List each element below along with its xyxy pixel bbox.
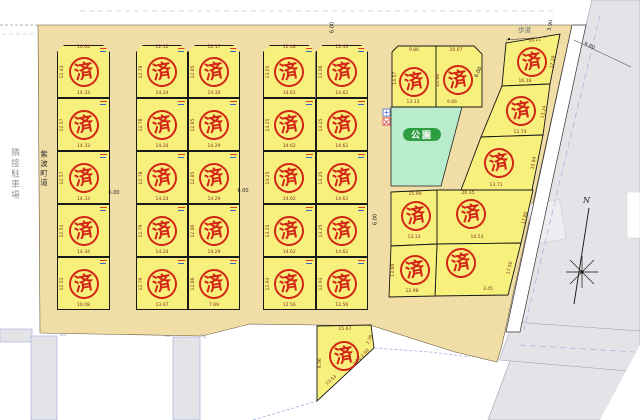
dimension-label: 17.80 xyxy=(522,211,529,225)
sold-stamp: 済 xyxy=(327,339,362,374)
sold-stamp: 済 xyxy=(399,199,434,234)
dimension-label: 15.67 xyxy=(339,328,352,333)
dimension-label: 13.24 xyxy=(542,106,549,119)
dimension-label: 18.21 xyxy=(528,38,541,44)
dimension-label: 17.28 xyxy=(551,56,558,69)
site-plan: 済14.3312.43済14.3312.57済14.3312.57済14.341… xyxy=(0,0,640,420)
sold-stamp: 済 xyxy=(482,146,517,181)
park-label: 公園 xyxy=(403,128,441,141)
dimension-label: 9.66 xyxy=(447,101,457,106)
town-road-label: 紫波町道 xyxy=(40,150,48,188)
north-label: N xyxy=(583,196,590,205)
dimension-label: 12.74 xyxy=(514,131,527,136)
sold-stamp: 済 xyxy=(397,65,432,100)
dimension-label: 17.50 xyxy=(507,261,514,275)
sold-stamp: 済 xyxy=(441,63,476,98)
dimension-label: 3.45 xyxy=(483,288,493,293)
dimension-label: 13.13 xyxy=(407,101,420,106)
dimension-label: 13.53 xyxy=(326,375,339,387)
dimension-label: 13.71 xyxy=(490,184,503,189)
dimension-label: 13.13 xyxy=(408,236,421,241)
dimension-label: 15.99 xyxy=(409,193,422,198)
dimension-label: 10.53 xyxy=(471,236,484,241)
dimension-label: 16.16 xyxy=(519,80,532,85)
dimension-label: 14.57 xyxy=(394,72,399,85)
dimension-label: 7.76 xyxy=(367,335,375,346)
dimension-label: 20.35 xyxy=(462,192,475,197)
dimension-label: 14.66 xyxy=(437,74,442,87)
sold-stamp: 済 xyxy=(454,197,489,232)
dimension-label: 3.90 xyxy=(548,20,555,32)
dimension-label: 12.98 xyxy=(406,290,419,295)
sold-stamp: 済 xyxy=(444,246,479,281)
dimension-label: 9.00 xyxy=(583,42,595,51)
dimension-label: 9.36 xyxy=(319,358,324,368)
dimension-label: 6.00 xyxy=(331,22,336,33)
dimension-label: 9.86 xyxy=(409,49,419,54)
dimension-label: 15.84 xyxy=(532,157,539,170)
labels-layer: 済9.8613.1314.57済10.079.6614.66済18.2116.1… xyxy=(0,0,640,420)
sold-stamp: 済 xyxy=(515,45,550,80)
sidewalk-label: 歩道 xyxy=(518,27,531,34)
dimension-label: 6.00 xyxy=(474,66,483,78)
dimension-label: 6.00 xyxy=(108,191,119,196)
dimension-label: 6.00 xyxy=(237,189,248,194)
adjacent-parking-label: 隣接駐車場 xyxy=(10,148,19,201)
sold-stamp: 済 xyxy=(504,94,539,129)
dimension-label: 13.68 xyxy=(392,264,397,277)
dimension-label: 10.07 xyxy=(450,49,463,54)
dimension-label: 6.00 xyxy=(374,214,379,225)
sold-stamp: 済 xyxy=(398,253,433,288)
